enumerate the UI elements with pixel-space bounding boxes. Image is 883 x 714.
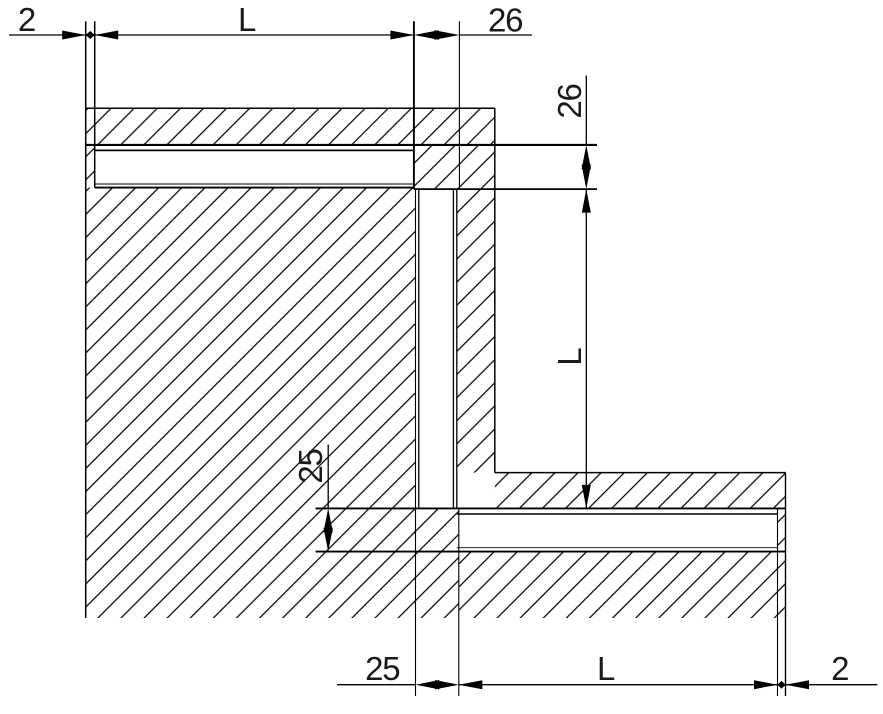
svg-text:L: L xyxy=(597,650,615,687)
svg-text:2: 2 xyxy=(831,650,848,687)
svg-text:26: 26 xyxy=(551,84,588,118)
svg-text:25: 25 xyxy=(292,449,329,483)
svg-text:L: L xyxy=(551,348,588,366)
svg-text:25: 25 xyxy=(365,650,399,687)
svg-text:L: L xyxy=(238,1,256,38)
svg-text:2: 2 xyxy=(18,1,35,38)
svg-text:26: 26 xyxy=(488,1,522,38)
